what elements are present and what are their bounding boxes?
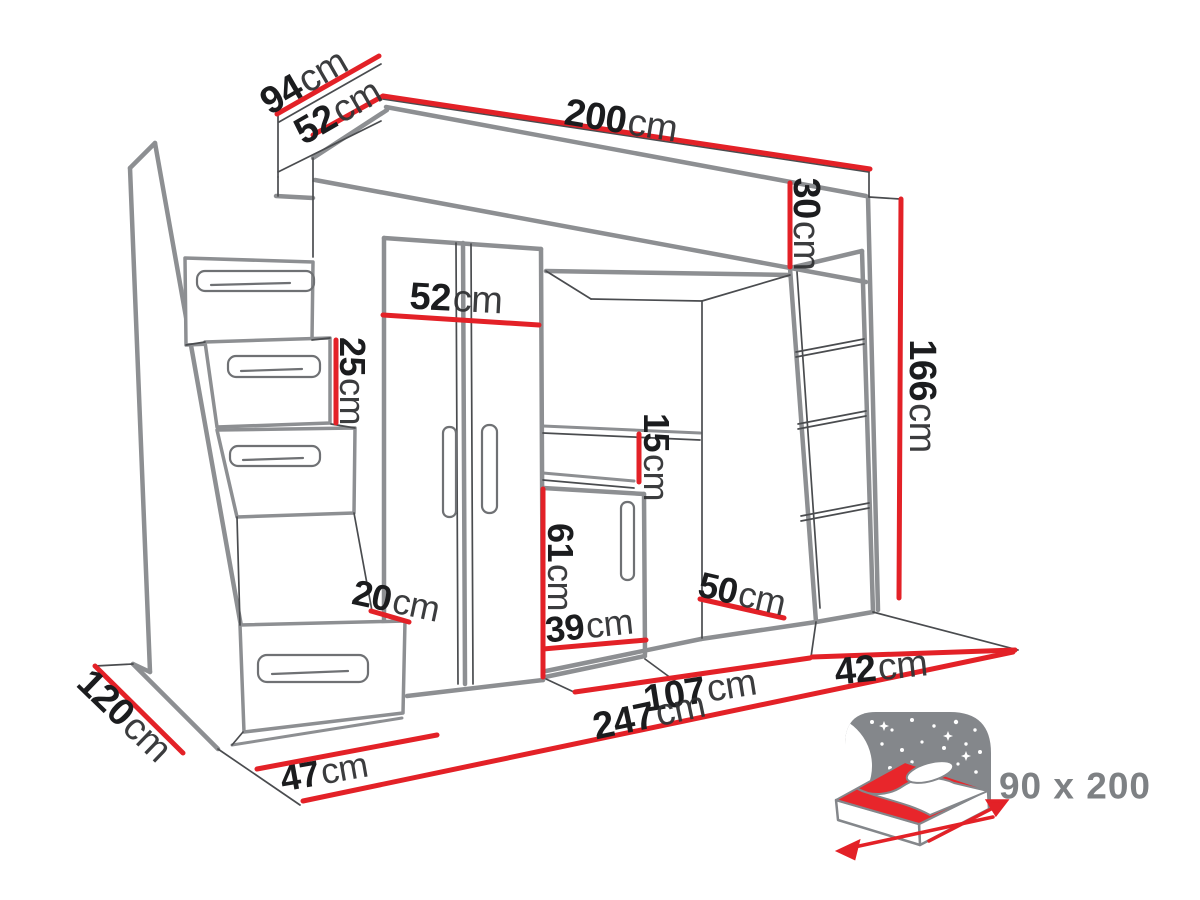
bed-size-label: 90 x 200 bbox=[999, 768, 1151, 805]
dim-label-underbed-height: 166cm bbox=[903, 339, 941, 453]
dim-label-wardrobe-width: 52cm bbox=[409, 278, 504, 321]
dim-label-bookcase-width: 42cm bbox=[833, 644, 929, 692]
diagram-canvas: 94cm 52cm 200cm 30cm 166cm 52cm 25cm 15c… bbox=[0, 0, 1200, 900]
dim-label-bed-frame-height: 30cm bbox=[787, 178, 825, 271]
dim-label-cabinet-height: 61cm bbox=[542, 523, 578, 611]
dim-label-drawer-height: 25cm bbox=[334, 337, 370, 425]
dim-label-desk-clearance: 15cm bbox=[638, 413, 674, 501]
dim-label-cabinet-width: 39cm bbox=[543, 603, 634, 648]
bed-size-icon bbox=[768, 712, 1006, 858]
